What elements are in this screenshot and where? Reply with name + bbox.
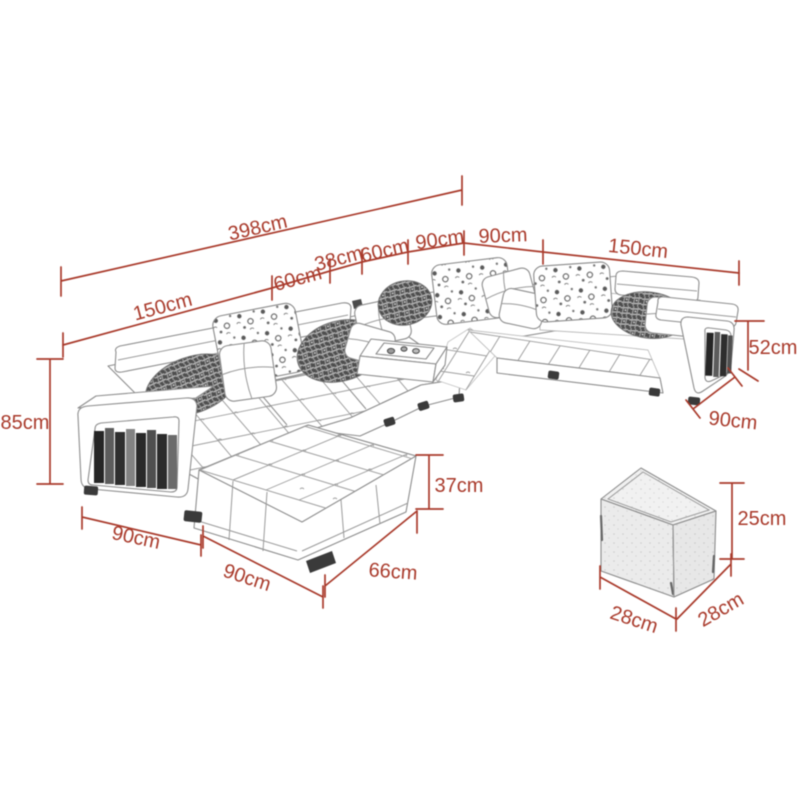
svg-text:90cm: 90cm [110, 522, 162, 554]
svg-text:60cm: 60cm [358, 235, 411, 267]
svg-text:38cm: 38cm [312, 242, 365, 276]
svg-text:90cm: 90cm [220, 560, 273, 596]
svg-text:90cm: 90cm [708, 408, 759, 435]
svg-text:150cm: 150cm [607, 235, 669, 263]
svg-text:66cm: 66cm [368, 559, 418, 584]
svg-text:150cm: 150cm [131, 289, 195, 326]
svg-text:90cm: 90cm [478, 224, 528, 248]
svg-text:28cm: 28cm [694, 588, 747, 632]
svg-text:90cm: 90cm [414, 226, 465, 255]
svg-text:25cm: 25cm [738, 508, 787, 530]
svg-text:52cm: 52cm [749, 337, 798, 359]
svg-text:85cm: 85cm [1, 412, 50, 434]
svg-text:37cm: 37cm [435, 475, 484, 497]
svg-text:28cm: 28cm [607, 602, 660, 638]
svg-text:398cm: 398cm [226, 211, 289, 246]
